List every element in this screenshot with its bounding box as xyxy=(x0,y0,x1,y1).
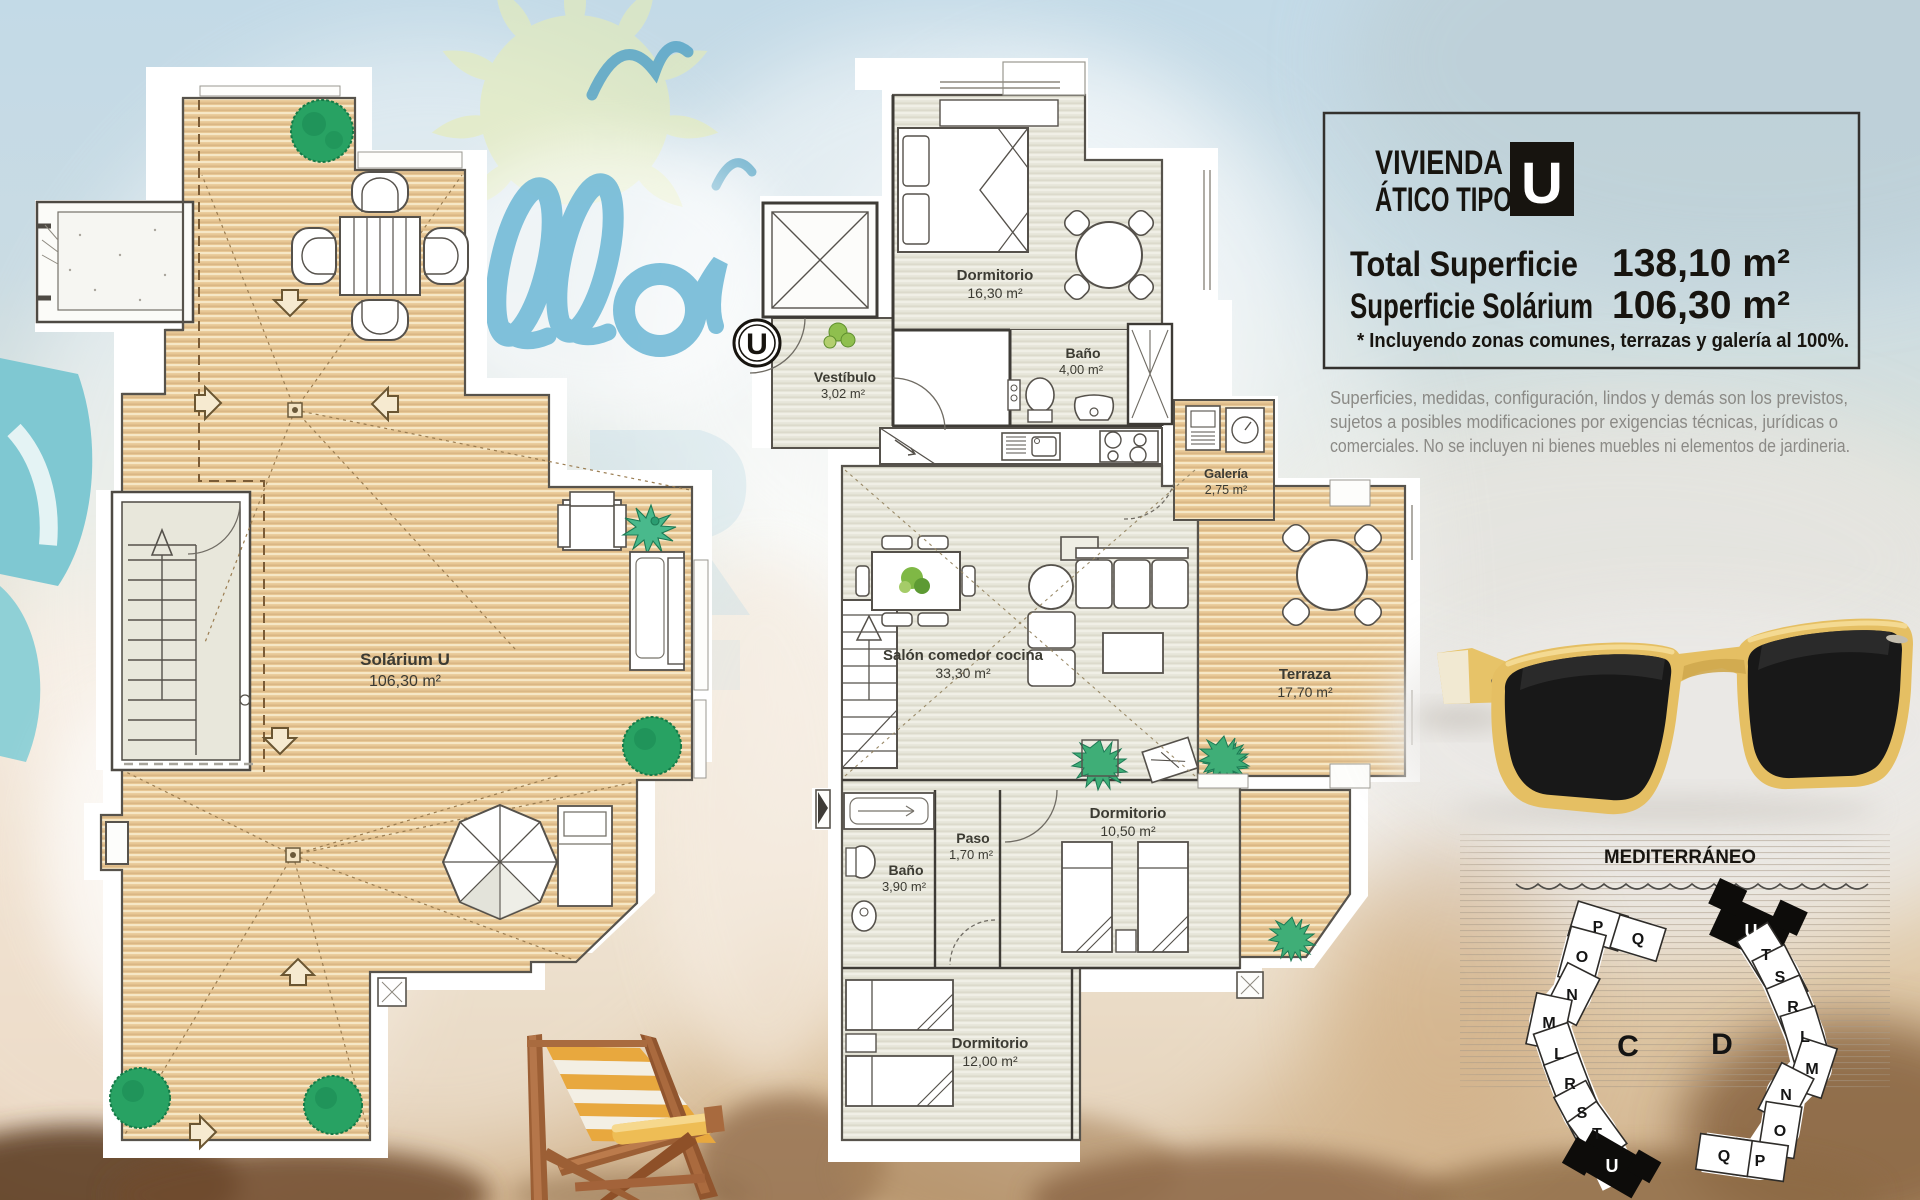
svg-text:U: U xyxy=(1521,151,1563,216)
svg-text:Superficies, medidas, configur: Superficies, medidas, configuración, lin… xyxy=(1330,388,1848,408)
svg-text:Q: Q xyxy=(1632,931,1644,948)
svg-text:* Incluyendo zonas comunes, te: * Incluyendo zonas comunes, terrazas y g… xyxy=(1357,330,1849,352)
svg-text:N: N xyxy=(1566,987,1578,1004)
svg-text:33,30 m²: 33,30 m² xyxy=(935,665,991,681)
svg-text:MEDITERRÁNEO: MEDITERRÁNEO xyxy=(1604,846,1756,868)
svg-text:comerciales. No se incluyen ni: comerciales. No se incluyen ni bienes mu… xyxy=(1330,436,1850,456)
svg-text:Solárium U: Solárium U xyxy=(360,650,450,669)
svg-text:P: P xyxy=(1755,1153,1766,1170)
svg-text:Dormitorio: Dormitorio xyxy=(952,1035,1029,1052)
svg-text:U: U xyxy=(746,328,768,361)
svg-text:138,10 m²: 138,10 m² xyxy=(1612,242,1790,285)
svg-text:D: D xyxy=(1711,1028,1733,1061)
svg-text:12,00 m²: 12,00 m² xyxy=(962,1053,1018,1069)
svg-text:R: R xyxy=(1787,999,1799,1016)
svg-text:Terraza: Terraza xyxy=(1279,666,1332,683)
svg-text:Salón comedor cocina: Salón comedor cocina xyxy=(883,647,1044,664)
svg-text:U: U xyxy=(1606,1156,1619,1176)
svg-text:3,02 m²: 3,02 m² xyxy=(821,386,866,401)
svg-text:Paso: Paso xyxy=(956,830,989,846)
svg-text:Q: Q xyxy=(1718,1148,1730,1165)
svg-text:L: L xyxy=(1800,1029,1810,1046)
svg-text:16,30 m²: 16,30 m² xyxy=(967,285,1023,301)
svg-text:106,30 m²: 106,30 m² xyxy=(1612,284,1790,327)
svg-text:C: C xyxy=(1617,1030,1639,1063)
svg-text:M: M xyxy=(1542,1015,1555,1032)
svg-text:10,50 m²: 10,50 m² xyxy=(1100,823,1156,839)
svg-text:VIVIENDA: VIVIENDA xyxy=(1375,144,1503,182)
svg-text:Baño: Baño xyxy=(889,862,924,878)
svg-text:2,75 m²: 2,75 m² xyxy=(1205,483,1247,497)
svg-text:4,00 m²: 4,00 m² xyxy=(1059,362,1104,377)
svg-text:O: O xyxy=(1774,1123,1786,1140)
svg-text:1,70 m²: 1,70 m² xyxy=(949,847,994,862)
svg-text:Superficie Solárium: Superficie Solárium xyxy=(1350,287,1593,326)
svg-text:Dormitorio: Dormitorio xyxy=(1090,805,1167,822)
svg-text:S: S xyxy=(1775,969,1786,986)
svg-text:M: M xyxy=(1805,1061,1818,1078)
svg-text:17,70 m²: 17,70 m² xyxy=(1277,684,1333,700)
svg-text:Baño: Baño xyxy=(1066,345,1101,361)
svg-text:106,30 m²: 106,30 m² xyxy=(369,673,442,690)
svg-text:T: T xyxy=(1592,1126,1602,1143)
svg-text:Dormitorio: Dormitorio xyxy=(957,267,1034,284)
svg-text:S: S xyxy=(1577,1105,1588,1122)
svg-text:T: T xyxy=(1761,947,1771,964)
svg-text:Galería: Galería xyxy=(1204,466,1249,481)
svg-text:Vestíbulo: Vestíbulo xyxy=(814,369,876,385)
svg-text:R: R xyxy=(1564,1076,1576,1093)
svg-text:Total Superficie: Total Superficie xyxy=(1350,245,1578,284)
svg-text:ÁTICO TIPO: ÁTICO TIPO xyxy=(1375,181,1512,219)
svg-text:P: P xyxy=(1593,919,1604,936)
svg-text:sujetos a posibles modificacio: sujetos a posibles modificaciones por ex… xyxy=(1330,412,1838,432)
svg-text:U: U xyxy=(1745,921,1758,941)
svg-text:O: O xyxy=(1576,949,1588,966)
svg-text:L: L xyxy=(1554,1046,1564,1063)
svg-text:3,90 m²: 3,90 m² xyxy=(882,879,927,894)
svg-text:N: N xyxy=(1780,1087,1792,1104)
